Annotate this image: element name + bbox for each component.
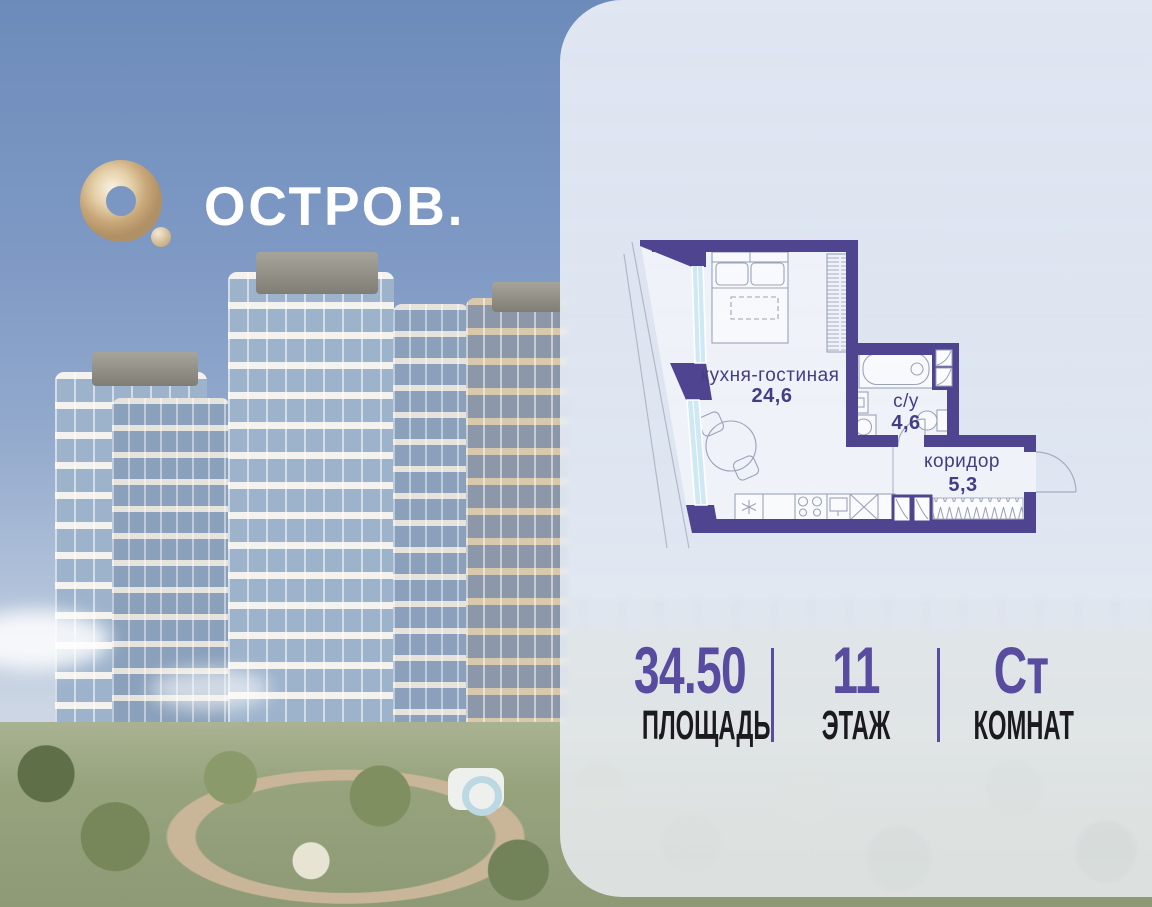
stat-floor-value: 11 [798,644,914,696]
stat-rooms: Ст КОМНАТ [939,644,1103,743]
stat-area: 34.50 ПЛОЩАДЬ [607,644,773,743]
listing-card: ОСТРОВ. [0,0,1152,907]
stat-floor-label: ЭТАЖ [808,707,904,743]
building-penthouse [492,282,562,312]
brand-title: ОСТРОВ. [204,174,465,238]
bath-niches [936,350,952,386]
floor-plan: кухня-гостиная 24,6 с/у 4,6 коридор 5,3 [618,230,1092,550]
building-penthouse [256,252,378,294]
room-label-bath: с/у [893,391,919,412]
entry-units [893,496,1023,522]
stat-area-value: 34.50 [632,644,748,696]
stat-floor: 11 ЭТАЖ [773,644,939,743]
playground-slide [448,768,504,810]
brand-logo: ОСТРОВ. [76,150,191,260]
cloud [150,668,270,710]
stat-rooms-label: КОМНАТ [973,707,1068,743]
room-area-bath: 4,6 [891,412,920,434]
stat-area-label: ПЛОЩАДЬ [642,707,738,743]
stat-rooms-value: Ст [964,644,1079,696]
room-label-corridor: коридор [924,451,1000,472]
room-area-corridor: 5,3 [948,474,977,496]
room-area-kitchen: 24,6 [752,385,793,407]
brand-logo-ring-icon [76,150,191,260]
room-label-kitchen: кухня-гостиная [701,365,840,386]
building-penthouse [92,352,198,386]
